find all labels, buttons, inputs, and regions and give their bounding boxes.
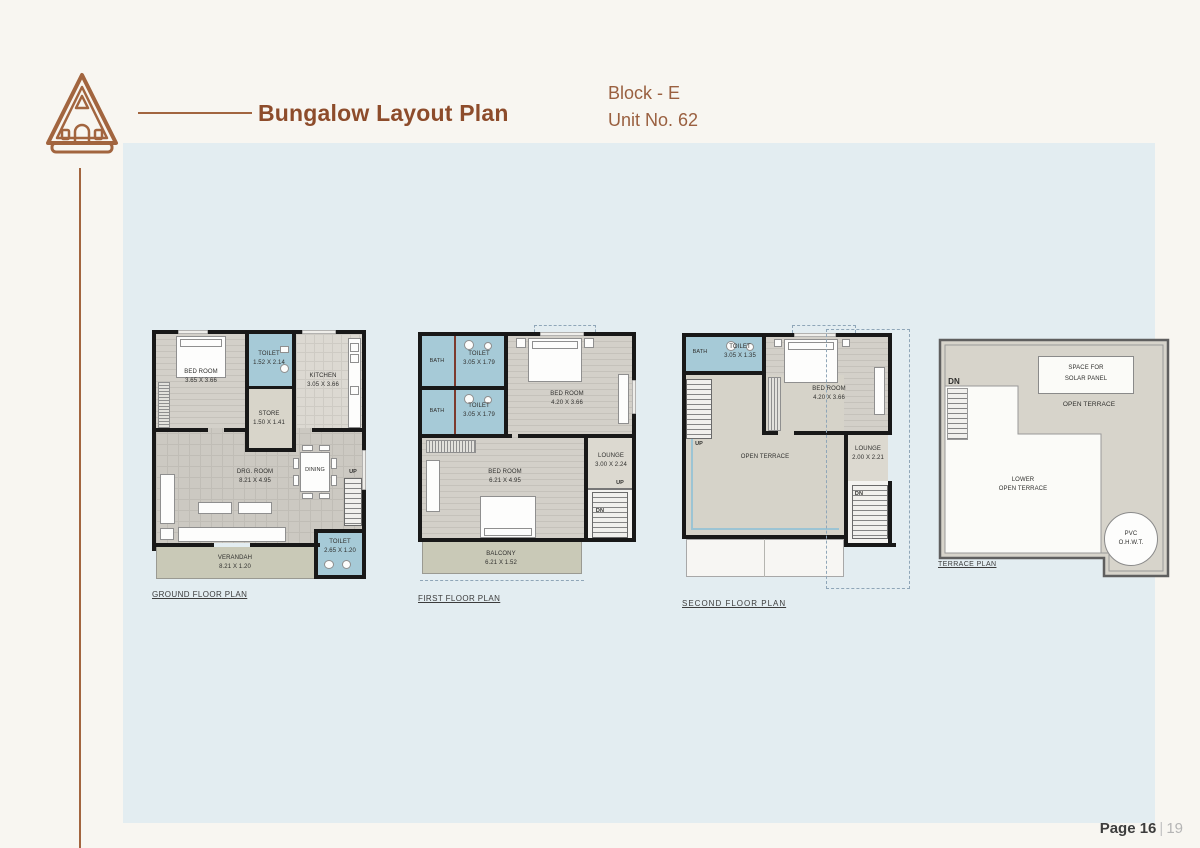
window-marker: [178, 330, 208, 334]
window-marker: [302, 330, 336, 334]
sofa: [160, 474, 175, 524]
block-unit-info: Block - E Unit No. 62: [608, 80, 698, 134]
wall: [314, 575, 366, 579]
kitchen-appliance: [350, 386, 359, 395]
room-label-toilet: TOILET 3.05 X 1.35: [716, 343, 764, 360]
dining-chair: [319, 445, 330, 451]
page-separator: |: [1156, 820, 1166, 837]
title-dash-line: [138, 112, 252, 114]
wall: [224, 428, 245, 432]
wall: [418, 332, 636, 336]
wall: [312, 428, 362, 432]
page-label: Page 16: [1100, 820, 1157, 837]
wall: [418, 538, 636, 542]
wc-fixture: [324, 560, 334, 569]
staircase: [686, 379, 712, 439]
wall: [518, 434, 632, 438]
wall: [152, 543, 214, 547]
wall: [156, 428, 208, 432]
staircase: [947, 388, 968, 440]
stairs-dn-label: DN: [942, 376, 966, 388]
room-label-drg-room: DRG. ROOM 8.21 X 4.95: [224, 468, 286, 485]
bed-pillow: [180, 339, 222, 347]
wall: [245, 448, 296, 452]
stairs-up-label: UP: [612, 480, 628, 488]
solar-panel-label: SPACE FOR SOLAR PANEL: [1038, 363, 1134, 386]
water-tank-label: PVC O.H.W.T.: [1104, 530, 1158, 547]
side-table: [160, 528, 174, 540]
room-label-bedroom: BED ROOM 3.65 X 3.66: [170, 368, 232, 385]
projection-dashes: [534, 325, 596, 332]
room-label-lounge: LOUNGE 2.00 X 2.21: [848, 445, 888, 462]
wall: [762, 431, 778, 435]
room-label-toilet: TOILET 1.52 X 2.14: [247, 350, 291, 367]
dining-chair: [302, 493, 313, 499]
room-label-open-terrace: OPEN TERRACE: [730, 453, 800, 462]
stairs-dn-label: DN: [850, 491, 868, 499]
wall: [152, 330, 156, 551]
sofa: [178, 527, 286, 542]
sofa: [426, 460, 440, 512]
nightstand: [584, 338, 594, 348]
window-marker: [632, 380, 636, 414]
brand-logo: [44, 70, 120, 161]
center-table: [238, 502, 272, 514]
projection-dashes: [792, 325, 856, 333]
page-title: Bungalow Layout Plan: [258, 100, 509, 127]
wall: [682, 535, 848, 539]
stairs-dn-label: DN: [592, 508, 608, 516]
room-label-lounge: LOUNGE 3.00 X 2.24: [590, 452, 632, 469]
room-label-dining: DINING: [302, 467, 328, 475]
wall: [245, 330, 249, 452]
stairs-up-label: UP: [344, 469, 362, 477]
room-label-toilet: TOILET 3.05 X 1.79: [454, 350, 504, 367]
wall: [422, 386, 504, 390]
bed-pillow: [532, 341, 578, 349]
wall: [292, 330, 296, 452]
wall: [250, 543, 320, 547]
wall: [588, 488, 632, 490]
room-label-bath: BATH: [420, 358, 454, 366]
room-label-bedroom: BED ROOM 6.21 X 4.95: [472, 468, 538, 485]
projection-dashes: [420, 580, 584, 581]
plan-title-second: SECOND FLOOR PLAN: [682, 599, 786, 608]
washbasin: [342, 560, 351, 569]
room-label-balcony: BALCONY 6.21 X 1.52: [466, 550, 536, 567]
unit-label: Unit No. 62: [608, 107, 698, 134]
nightstand: [516, 338, 526, 348]
wall: [245, 386, 292, 389]
wall: [686, 371, 766, 375]
window-marker: [362, 450, 366, 490]
wall: [682, 333, 686, 539]
wall: [314, 529, 366, 533]
roof-divider: [764, 539, 765, 577]
dining-chair: [302, 445, 313, 451]
dining-chair: [293, 458, 299, 469]
left-accent-line: [79, 168, 81, 848]
lower-terrace-label: LOWER OPEN TERRACE: [980, 476, 1066, 493]
stairs-up-label: UP: [690, 441, 708, 449]
dining-chair: [293, 475, 299, 486]
wardrobe: [426, 440, 476, 453]
wall: [584, 438, 588, 542]
plan-title-terrace: TERRACE PLAN: [938, 561, 996, 568]
wc-fixture: [464, 340, 474, 350]
kitchen-sink: [350, 343, 359, 352]
room-label-store: STORE 1.50 X 1.41: [247, 410, 291, 427]
room-label-bedroom: BED ROOM 4.20 X 3.66: [536, 390, 598, 407]
room-label-bedroom: BED ROOM 4.20 X 3.66: [798, 385, 860, 402]
room-label-kitchen: KITCHEN 3.05 X 3.66: [298, 372, 348, 389]
window-marker: [540, 332, 584, 336]
wall: [504, 332, 508, 438]
plan-title-ground: GROUND FLOOR PLAN: [152, 590, 247, 599]
plan-title-first: FIRST FLOOR PLAN: [418, 594, 500, 603]
room-label-verandah: VERANDAH 8.21 X 1.20: [200, 554, 270, 571]
dining-chair: [331, 475, 337, 486]
room-label-bath: BATH: [420, 408, 454, 416]
dining-chair: [319, 493, 330, 499]
room-label-bath: BATH: [684, 349, 716, 357]
wardrobe: [768, 377, 781, 431]
kitchen-hob: [350, 354, 359, 363]
dining-chair: [331, 458, 337, 469]
open-terrace-label: OPEN TERRACE: [1046, 400, 1132, 409]
wardrobe: [158, 382, 170, 428]
bed-pillow: [484, 528, 532, 536]
staircase: [344, 478, 362, 526]
room-label-toilet: TOILET 3.05 X 1.79: [454, 402, 504, 419]
first-floor-plan: BATH TOILET 3.05 X 1.79 BATH TOILET 3.05…: [418, 332, 640, 608]
wall: [504, 434, 512, 438]
lower-roof: [686, 539, 844, 577]
page-total: 19: [1166, 820, 1183, 837]
wall: [632, 332, 636, 542]
block-label: Block - E: [608, 80, 698, 107]
wall: [422, 434, 508, 438]
sofa: [618, 374, 629, 424]
nightstand: [774, 339, 782, 347]
page-number: Page 16|19: [1100, 820, 1183, 837]
house-logo-icon: [44, 70, 120, 156]
room-label-toilet: TOILET 2.65 X 1.20: [316, 538, 364, 555]
washbasin: [484, 342, 492, 350]
second-floor-plan: BATH TOILET 3.05 X 1.35 BED ROOM 4.20 X …: [682, 333, 910, 613]
center-table: [198, 502, 232, 514]
terrace-plan: DN SPACE FOR SOLAR PANEL OPEN TERRACE LO…: [938, 334, 1178, 586]
ground-floor-plan: BED ROOM 3.65 X 3.66 TOILET 1.52 X 2.14 …: [152, 330, 370, 606]
